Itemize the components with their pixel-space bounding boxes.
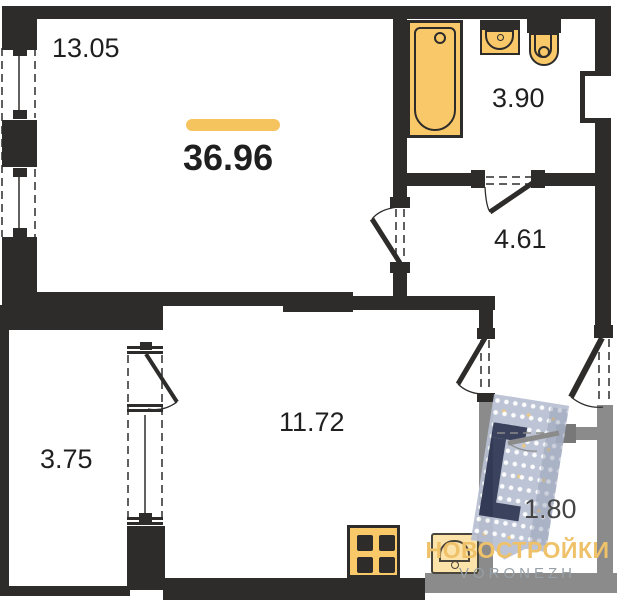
kitchen-door bbox=[458, 338, 489, 394]
entrance-door bbox=[571, 338, 609, 407]
door-jamb bbox=[390, 197, 410, 208]
wall bbox=[0, 586, 130, 596]
window-sill bbox=[127, 404, 163, 407]
logo-title: НОВОСТРОЙКИ bbox=[425, 538, 610, 563]
window-frame-tab bbox=[140, 342, 152, 350]
door-jamb bbox=[471, 170, 485, 188]
sink-faucet-icon bbox=[497, 34, 504, 41]
wall bbox=[283, 292, 353, 312]
room-area-label: 1.80 bbox=[524, 496, 577, 523]
bathtub-drain-icon bbox=[434, 32, 446, 44]
bathtub-icon bbox=[407, 20, 463, 138]
door-jamb bbox=[477, 328, 495, 339]
sink-icon bbox=[480, 20, 520, 55]
wall bbox=[127, 526, 165, 590]
wall bbox=[6, 6, 611, 19]
wall bbox=[2, 120, 37, 167]
door-jamb bbox=[390, 262, 410, 273]
logo-subtitle: VORONEZH bbox=[425, 566, 610, 583]
wall bbox=[595, 6, 611, 325]
stove-burner-icon bbox=[379, 535, 395, 551]
wall bbox=[345, 296, 495, 310]
room-area-label: 4.61 bbox=[494, 226, 547, 253]
room-area-label: 3.90 bbox=[492, 85, 545, 112]
window-sill bbox=[127, 409, 163, 412]
stove-burner-icon bbox=[357, 535, 373, 551]
wall bbox=[2, 6, 37, 50]
wall bbox=[479, 306, 493, 328]
window-frame-tab bbox=[13, 47, 27, 56]
balcony-window-and-door bbox=[128, 354, 177, 518]
stove-icon bbox=[347, 525, 400, 578]
toilet-icon bbox=[538, 46, 550, 58]
stove-burner-icon bbox=[379, 557, 395, 573]
bathtub-icon bbox=[414, 27, 456, 131]
stove-burner-icon bbox=[357, 557, 373, 573]
wall bbox=[35, 292, 285, 306]
wall bbox=[0, 305, 163, 330]
room-area-label: 3.75 bbox=[40, 446, 93, 473]
wall bbox=[0, 330, 9, 592]
bathroom-door bbox=[485, 177, 537, 212]
room-area-label: 13.05 bbox=[52, 35, 120, 62]
room-area-label: 11.72 bbox=[279, 409, 345, 436]
wall bbox=[393, 13, 407, 197]
toilet-icon bbox=[527, 17, 561, 33]
wall bbox=[393, 173, 473, 186]
window-frame-tab bbox=[139, 513, 152, 522]
wall bbox=[163, 578, 425, 600]
toilet-icon bbox=[529, 33, 559, 66]
logo: НОВОСТРОЙКИ VORONEZH bbox=[425, 538, 610, 583]
floor-plan: 13.05 36.96 3.90 4.61 11.72 3.75 1.80 НО… bbox=[0, 0, 617, 600]
door-jamb bbox=[594, 325, 613, 338]
window-frame-tab bbox=[13, 228, 27, 237]
window-sill bbox=[127, 351, 163, 354]
living-room-door bbox=[372, 207, 404, 263]
total-area-accent-bar bbox=[186, 119, 280, 131]
sink-icon bbox=[482, 22, 518, 30]
window-frame-tab bbox=[13, 168, 27, 177]
wall-niche bbox=[585, 76, 611, 118]
wall bbox=[393, 273, 407, 306]
total-area-label: 36.96 bbox=[183, 140, 273, 176]
wall bbox=[2, 237, 37, 307]
window-sill bbox=[127, 522, 163, 525]
window-frame-tab bbox=[13, 110, 27, 119]
